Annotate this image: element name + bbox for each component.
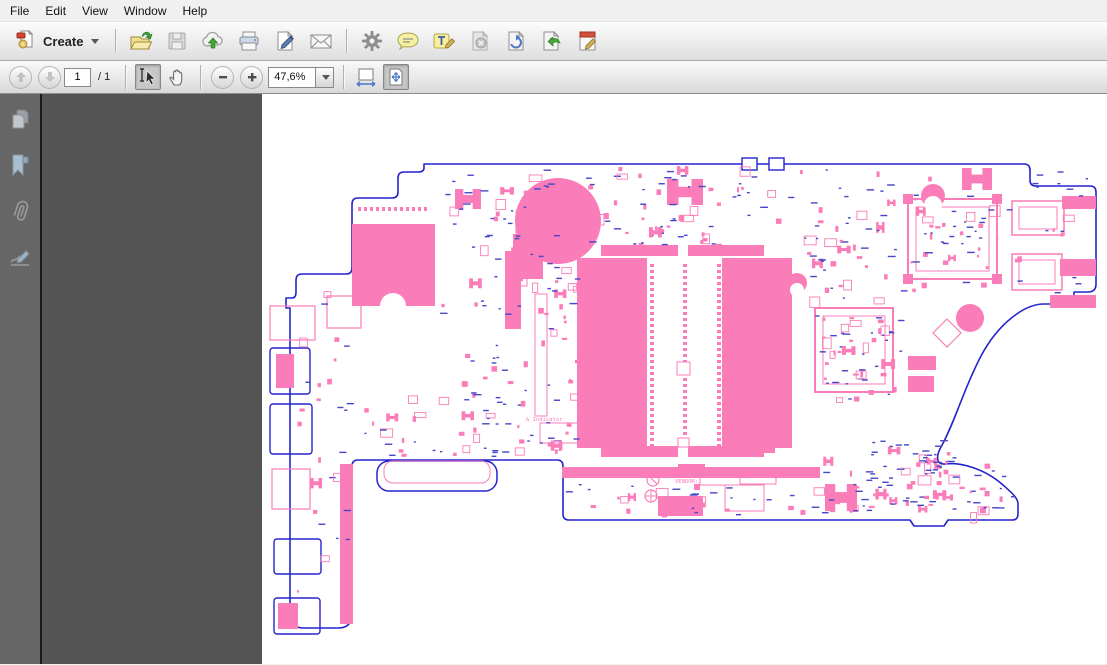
create-button[interactable]: Create <box>8 24 108 59</box>
previous-page-button[interactable] <box>9 66 32 89</box>
fit-page-button[interactable] <box>383 64 409 90</box>
print-icon <box>236 29 262 53</box>
svg-text:RTC: RTC <box>563 228 576 236</box>
menu-file[interactable]: File <box>2 2 37 20</box>
toolbar-separator <box>200 65 201 89</box>
svg-text:& Indicator: & Indicator <box>526 417 563 423</box>
fill-sign-icon <box>273 29 297 53</box>
open-button[interactable] <box>126 26 156 56</box>
comment-button[interactable] <box>393 26 423 56</box>
save-icon <box>165 29 189 53</box>
delete-page-icon <box>468 29 492 53</box>
rotate-page-icon <box>504 29 528 53</box>
fit-width-icon <box>355 67 377 87</box>
menu-window[interactable]: Window <box>116 2 175 20</box>
page-total-label: / 1 <box>98 71 110 83</box>
cloud-upload-button[interactable] <box>198 26 228 56</box>
edit-document-icon <box>576 29 600 53</box>
select-tool-button[interactable] <box>135 64 161 90</box>
save-button[interactable] <box>162 26 192 56</box>
export-page-icon <box>540 29 564 53</box>
open-icon <box>128 29 154 53</box>
menu-bar: File Edit View Window Help <box>0 0 1107 22</box>
minus-icon <box>217 71 229 83</box>
print-button[interactable] <box>234 26 264 56</box>
navigation-toolbar: / 1 47,6% <box>0 61 1107 94</box>
hand-tool-icon <box>168 67 188 87</box>
page-number-input[interactable] <box>64 68 91 87</box>
content-area: RTC& IndicatorVENDOR: <box>0 94 1107 664</box>
next-page-button[interactable] <box>38 66 61 89</box>
page-thumbnails-icon <box>9 107 31 131</box>
menu-view[interactable]: View <box>74 2 116 20</box>
toolbar-separator <box>343 65 344 89</box>
signatures-button[interactable] <box>7 244 33 270</box>
fit-page-icon <box>386 67 406 87</box>
highlight-text-icon <box>431 29 457 53</box>
zoom-level-combo[interactable]: 47,6% <box>268 67 334 88</box>
zoom-in-button[interactable] <box>240 66 263 89</box>
chevron-down-icon <box>322 75 330 80</box>
highlight-text-button[interactable] <box>429 26 459 56</box>
arrow-down-icon <box>44 71 56 83</box>
email-button[interactable] <box>306 26 336 56</box>
svg-text:VENDOR:: VENDOR: <box>675 479 698 485</box>
plus-icon <box>246 71 258 83</box>
attachments-button[interactable] <box>7 198 33 224</box>
navigation-panel <box>0 94 40 664</box>
zoom-level-value[interactable]: 47,6% <box>268 67 316 88</box>
fill-sign-button[interactable] <box>270 26 300 56</box>
zoom-out-button[interactable] <box>211 66 234 89</box>
pdf-page: RTC& IndicatorVENDOR: <box>262 94 1107 664</box>
arrow-up-icon <box>15 71 27 83</box>
hand-tool-button[interactable] <box>165 64 191 90</box>
email-icon <box>308 29 334 53</box>
toolbar-separator <box>125 65 126 89</box>
create-pdf-icon <box>15 28 37 55</box>
fit-width-button[interactable] <box>353 64 379 90</box>
comment-bubble-icon <box>395 29 421 53</box>
preferences-button[interactable] <box>357 26 387 56</box>
signature-icon <box>8 246 32 268</box>
gear-icon <box>360 29 384 53</box>
delete-page-button[interactable] <box>465 26 495 56</box>
toolbar-separator <box>346 29 347 53</box>
bookmarks-icon <box>9 153 31 177</box>
zoom-level-dropdown-button[interactable] <box>316 67 334 88</box>
edit-document-button[interactable] <box>573 26 603 56</box>
page-thumbnails-button[interactable] <box>7 106 33 132</box>
toolbar-separator <box>115 29 116 53</box>
chevron-down-icon <box>91 39 99 44</box>
select-tool-icon <box>138 67 158 87</box>
menu-edit[interactable]: Edit <box>37 2 74 20</box>
main-toolbar: Create <box>0 22 1107 61</box>
bookmarks-button[interactable] <box>7 152 33 178</box>
menu-help[interactable]: Help <box>175 2 216 20</box>
pcb-assembly-drawing: RTC& IndicatorVENDOR: <box>262 94 1107 664</box>
rotate-page-button[interactable] <box>501 26 531 56</box>
paperclip-icon <box>8 198 32 224</box>
document-background: RTC& IndicatorVENDOR: <box>42 94 1107 664</box>
cloud-upload-icon <box>200 29 226 53</box>
export-page-button[interactable] <box>537 26 567 56</box>
create-button-label: Create <box>43 34 83 49</box>
